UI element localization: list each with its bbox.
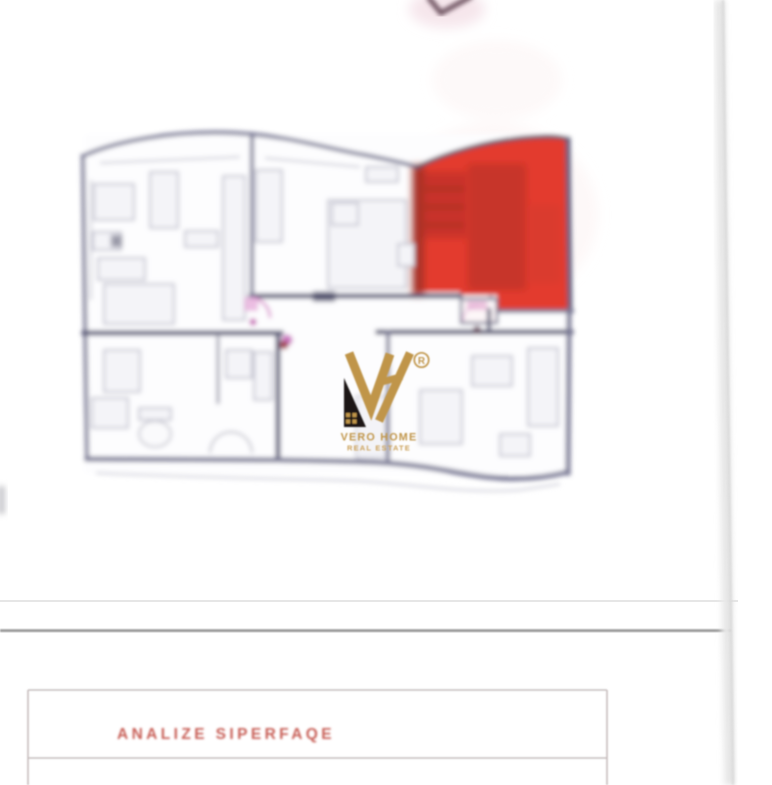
svg-text:ANALIZE SIPERFAQE: ANALIZE SIPERFAQE <box>117 726 335 743</box>
svg-text:REAL ESTATE: REAL ESTATE <box>347 444 411 453</box>
svg-text:R: R <box>418 356 426 367</box>
svg-text:VERO HOME: VERO HOME <box>341 432 418 444</box>
